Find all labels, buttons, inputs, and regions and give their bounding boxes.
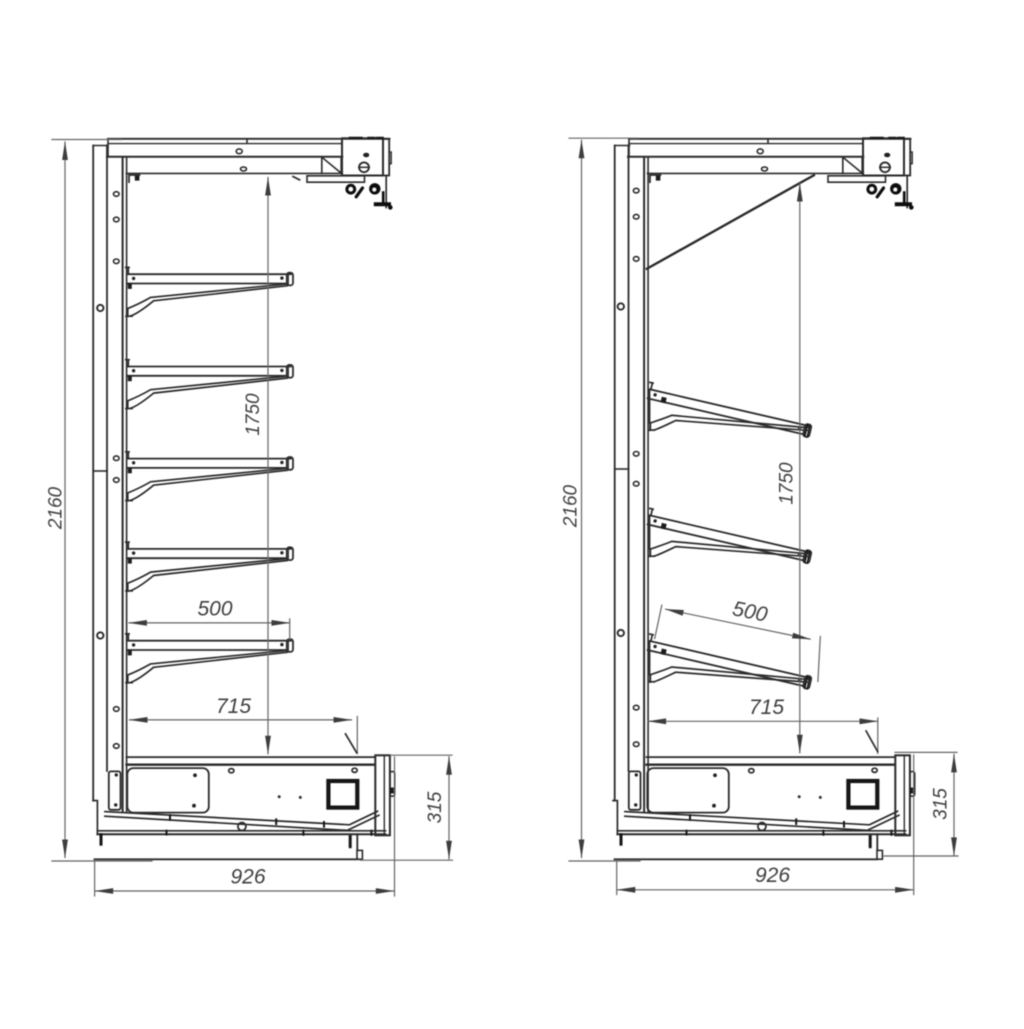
svg-text:315: 315 xyxy=(425,791,446,823)
svg-text:315: 315 xyxy=(931,788,952,820)
svg-text:2160: 2160 xyxy=(46,486,67,530)
svg-text:926: 926 xyxy=(755,864,790,887)
svg-text:2160: 2160 xyxy=(561,484,582,528)
svg-text:1750: 1750 xyxy=(243,393,264,436)
svg-text:715: 715 xyxy=(749,696,784,719)
svg-text:715: 715 xyxy=(216,695,251,718)
svg-text:926: 926 xyxy=(230,866,265,889)
svg-text:500: 500 xyxy=(197,598,232,621)
svg-text:1750: 1750 xyxy=(777,462,798,505)
